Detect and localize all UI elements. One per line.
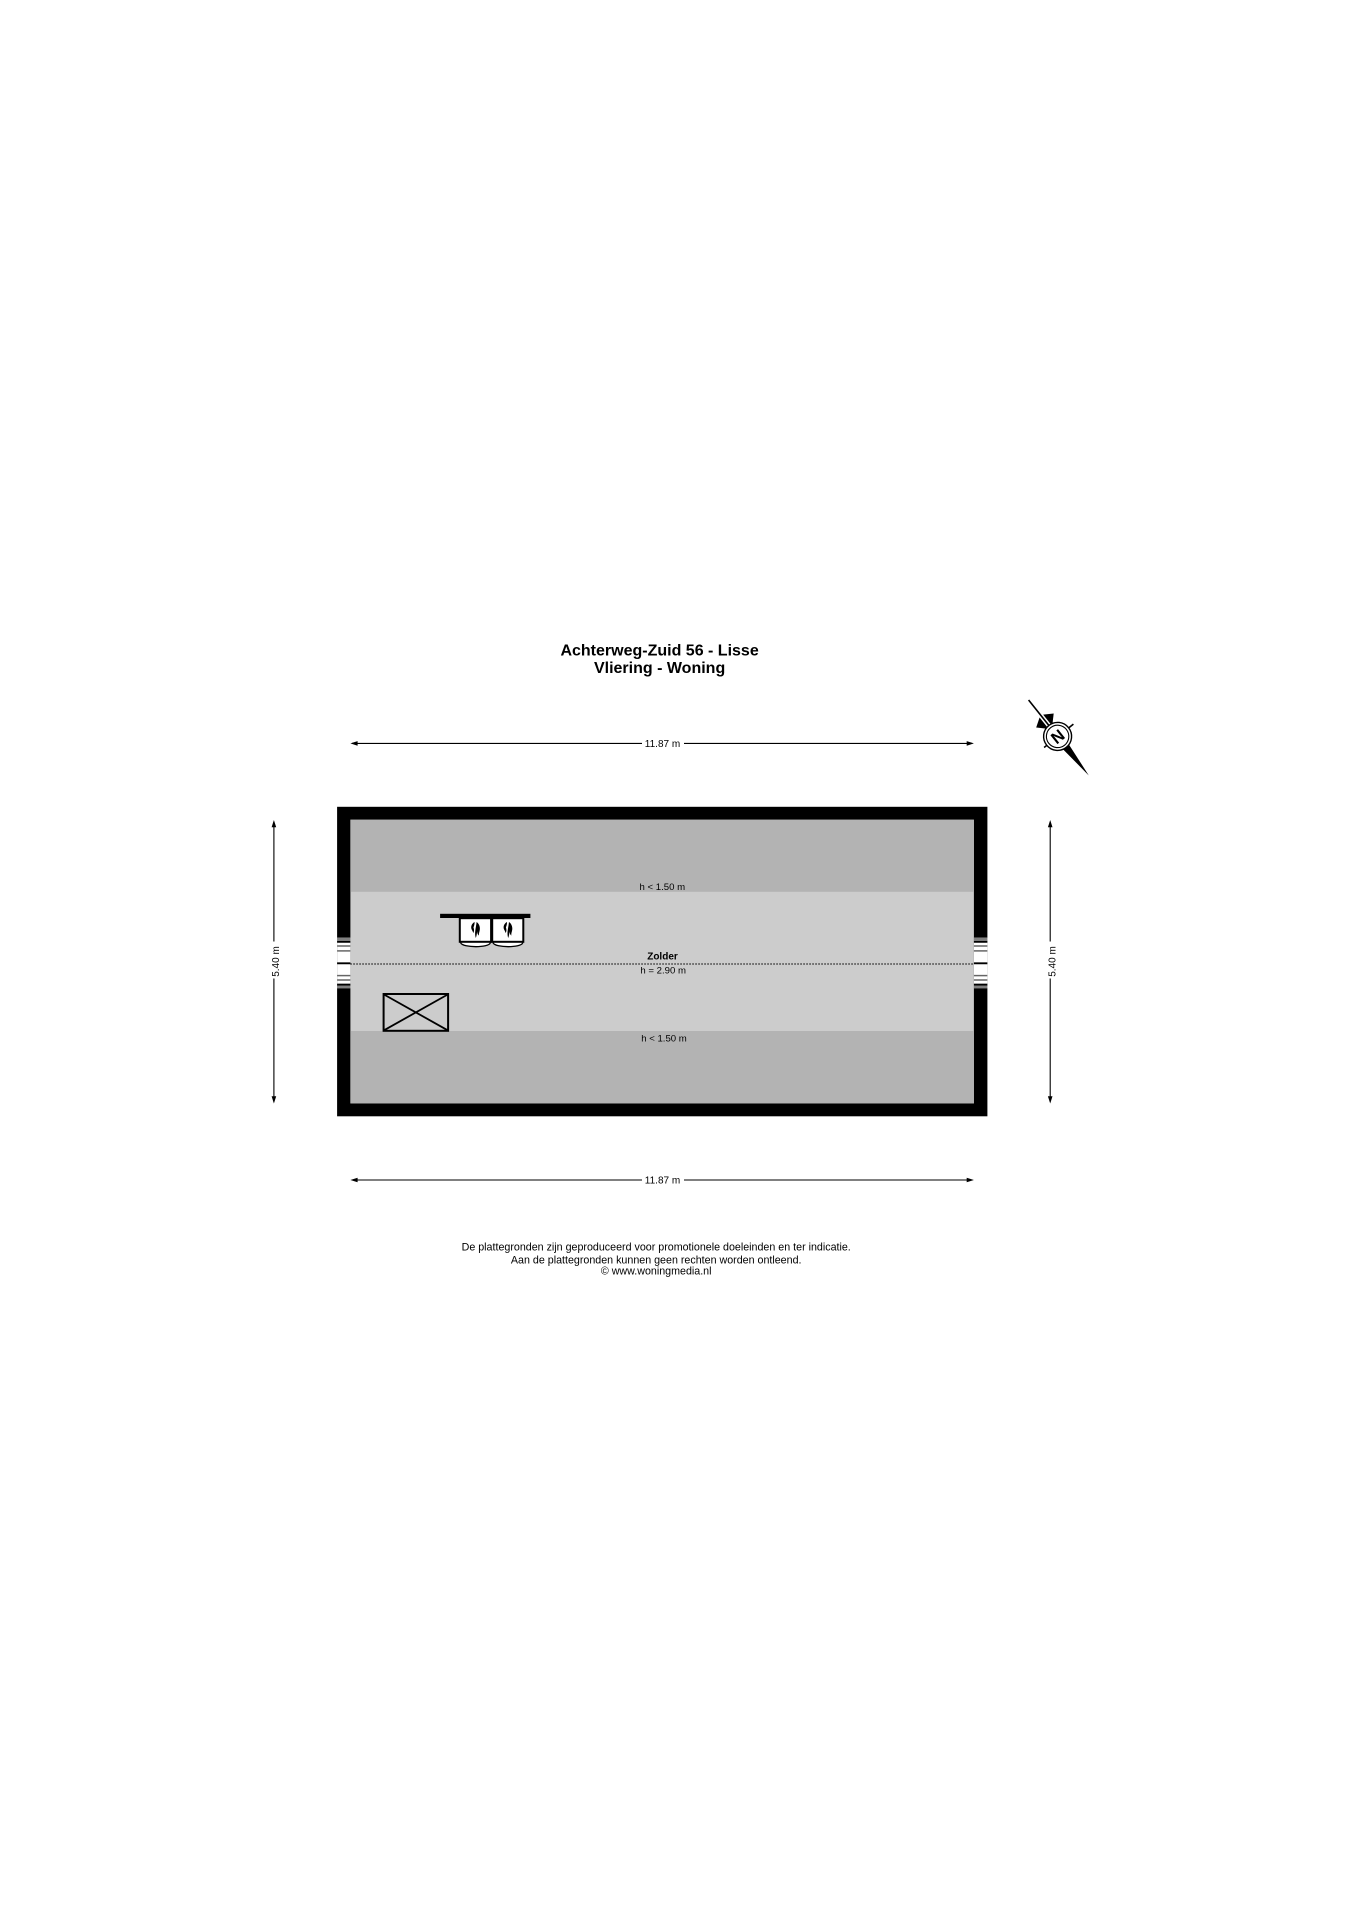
svg-text:Achterweg-Zuid 56 - Lisse: Achterweg-Zuid 56 - Lisse: [560, 642, 758, 659]
svg-text:h < 1.50 m: h < 1.50 m: [641, 1034, 687, 1045]
svg-text:Vliering - Woning: Vliering - Woning: [594, 660, 725, 677]
svg-text:5.40 m: 5.40 m: [271, 946, 282, 977]
svg-text:Zolder: Zolder: [647, 951, 678, 962]
svg-text:Aan de plattegronden kunnen ge: Aan de plattegronden kunnen geen rechten…: [511, 1254, 802, 1266]
svg-text:© www.woningmedia.nl: © www.woningmedia.nl: [601, 1266, 712, 1278]
svg-text:5.40 m: 5.40 m: [1047, 946, 1058, 977]
svg-text:11.87 m: 11.87 m: [645, 1175, 680, 1186]
svg-text:h < 1.50 m: h < 1.50 m: [639, 882, 685, 893]
svg-text:h = 2.90 m: h = 2.90 m: [640, 965, 686, 976]
svg-text:11.87 m: 11.87 m: [645, 739, 680, 750]
svg-text:De plattegronden zijn geproduc: De plattegronden zijn geproduceerd voor …: [462, 1242, 851, 1254]
